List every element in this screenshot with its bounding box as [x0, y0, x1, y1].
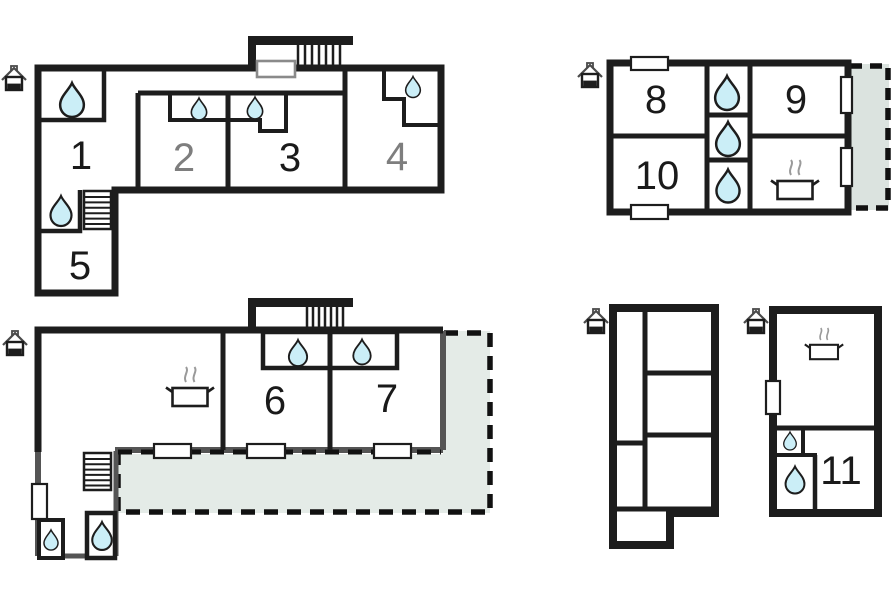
- terrace-upper-right: [849, 64, 889, 210]
- room-label-5: 5: [69, 246, 91, 286]
- window: [154, 444, 191, 458]
- building-d: [613, 308, 715, 545]
- balcony-door: [257, 61, 295, 77]
- floor-plan-page: 1 2 3 4 5 6 7 8 9 10 11: [0, 0, 896, 597]
- room-label-4: 4: [386, 137, 408, 177]
- room-label-7: 7: [376, 379, 398, 419]
- window: [631, 57, 668, 70]
- window: [247, 444, 285, 458]
- entrance-icon: [584, 309, 608, 333]
- stairs-icon: [84, 191, 111, 229]
- window: [631, 205, 668, 219]
- entrance-icon: [744, 309, 768, 333]
- room-label-6: 6: [264, 381, 286, 421]
- room-label-10: 10: [635, 156, 680, 196]
- entrance-icon: [3, 331, 27, 355]
- entrance-icon: [578, 63, 602, 87]
- building-a-outline: [38, 68, 441, 293]
- room-label-8: 8: [645, 80, 667, 120]
- entrance-icon: [2, 66, 26, 90]
- window: [841, 77, 852, 113]
- floor-plan-svg: [0, 0, 896, 597]
- building-c: [32, 298, 443, 558]
- room-label-1: 1: [70, 136, 92, 176]
- stairs-icon: [84, 453, 111, 490]
- room-label-3: 3: [279, 138, 301, 178]
- window: [841, 148, 852, 186]
- window: [374, 444, 411, 458]
- room-label-9: 9: [785, 80, 807, 120]
- window: [32, 484, 47, 519]
- building-a: [38, 36, 441, 293]
- balcony-c: [248, 298, 353, 330]
- window: [766, 381, 780, 414]
- room-label-2: 2: [173, 138, 195, 178]
- room-label-11: 11: [820, 451, 862, 491]
